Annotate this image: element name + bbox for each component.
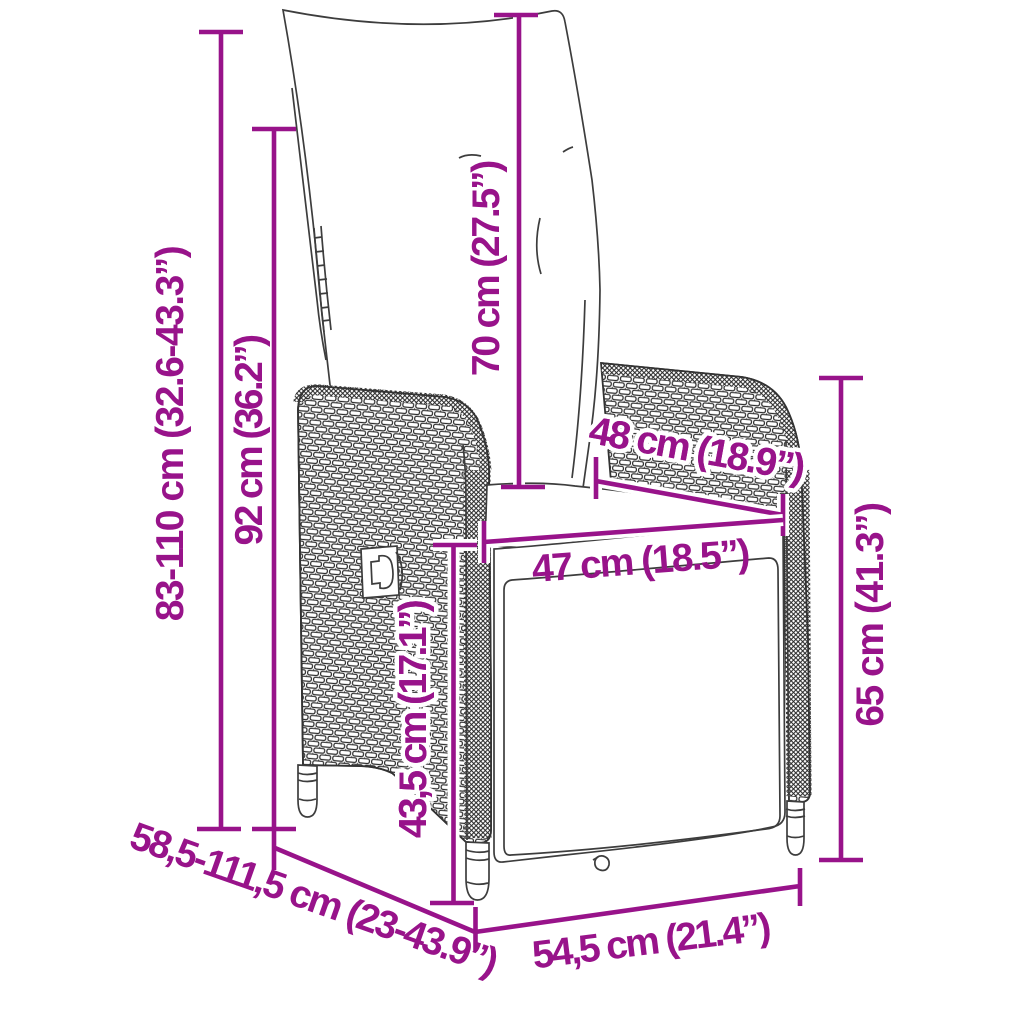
svg-text:92 cm (36.2”): 92 cm (36.2”) (228, 335, 271, 546)
svg-text:83-110 cm (32.6-43.3”): 83-110 cm (32.6-43.3”) (149, 246, 192, 621)
svg-text:65 cm (41.3”): 65 cm (41.3”) (849, 503, 892, 727)
svg-text:43,5 cm (17.1”): 43,5 cm (17.1”) (392, 600, 435, 838)
svg-text:70 cm (27.5”): 70 cm (27.5”) (465, 161, 508, 376)
